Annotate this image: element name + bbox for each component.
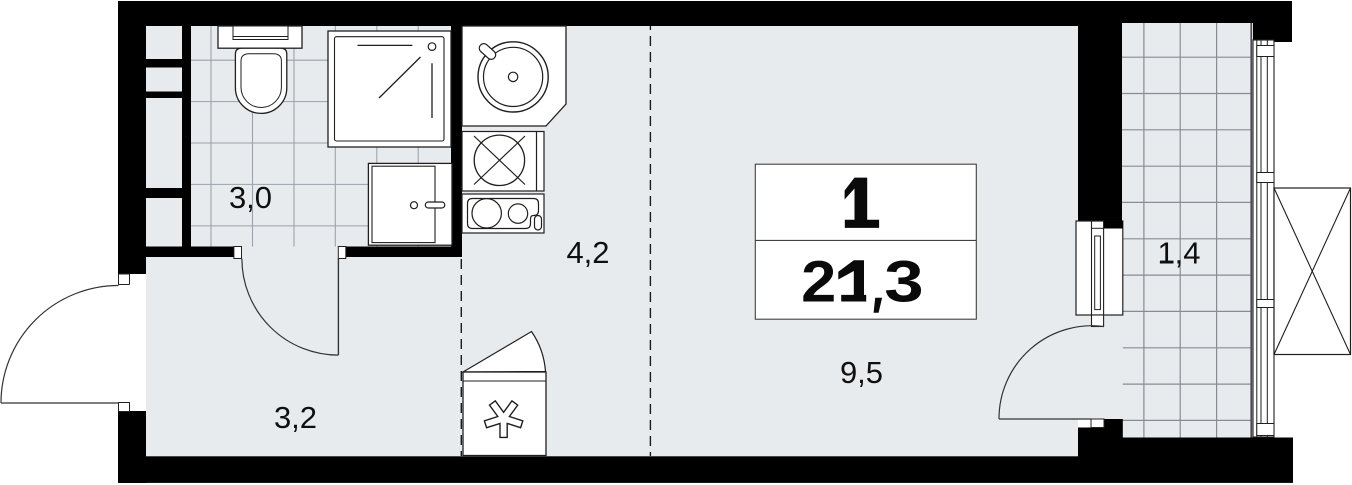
svg-text:3,2: 3,2 xyxy=(274,400,317,435)
svg-text:1,4: 1,4 xyxy=(1157,235,1200,270)
svg-text:9,5: 9,5 xyxy=(840,355,883,390)
svg-text:4,2: 4,2 xyxy=(566,235,609,270)
svg-text:3,0: 3,0 xyxy=(229,180,272,215)
svg-text:2: 2 xyxy=(801,249,836,314)
svg-text:3: 3 xyxy=(884,248,923,314)
